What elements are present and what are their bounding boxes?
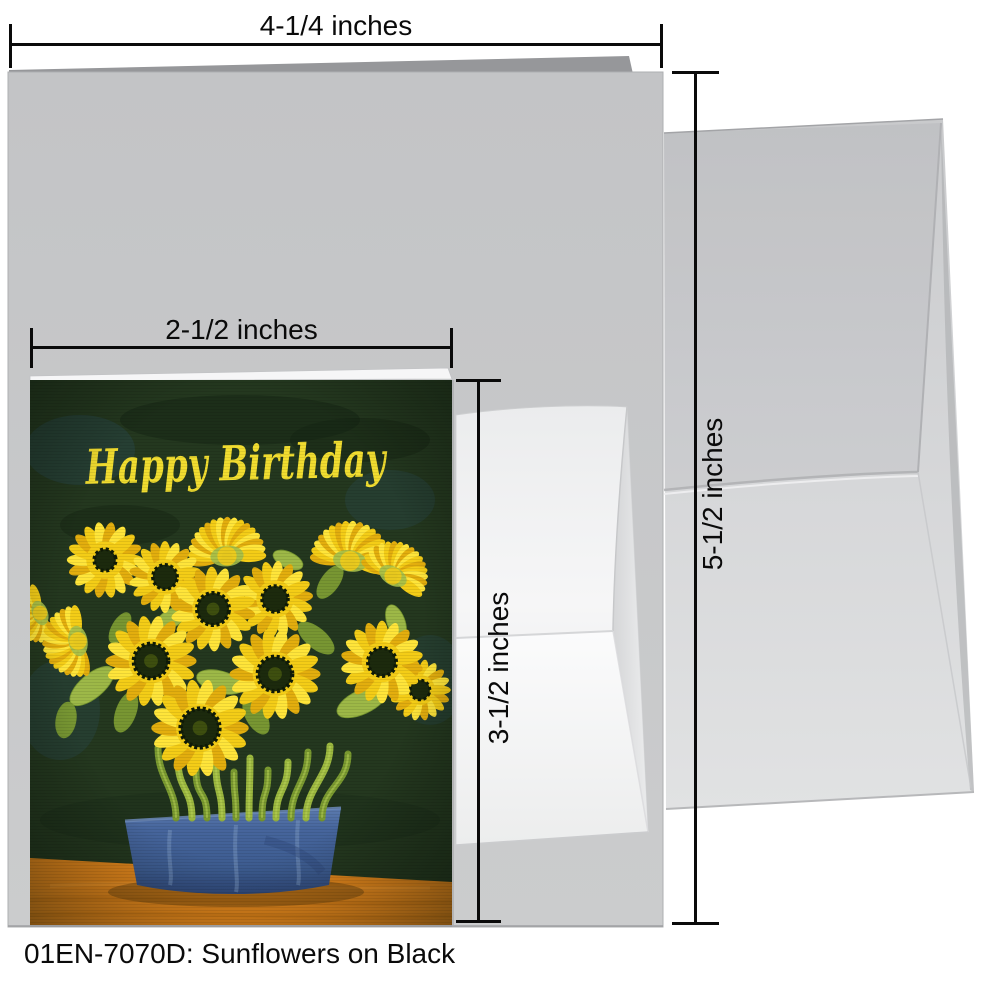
dimension-tick-preview-height-bottom xyxy=(456,920,501,923)
card-artwork: Happy Birthday xyxy=(30,380,452,925)
product-code-caption: 01EN-7070D: Sunflowers on Black xyxy=(24,938,455,970)
dimension-tick-large-height-top xyxy=(672,71,719,74)
dimension-tick-large-width-right xyxy=(660,24,663,68)
dimension-label-preview-width: 2-1/2 inches xyxy=(30,314,453,346)
dimension-tick-preview-height-top xyxy=(456,379,501,382)
vignette-overlay xyxy=(30,380,452,925)
dimension-tick-large-width-left xyxy=(9,24,12,68)
dimension-tick-preview-width-left xyxy=(30,328,33,368)
dimension-tick-large-height-bottom xyxy=(672,922,719,925)
dimension-label-large-height: 5-1/2 inches xyxy=(697,418,729,571)
dimension-line-preview-height xyxy=(477,380,480,923)
product-photo: Happy Birthday 4-1/4 inches 5-1/2 inches… xyxy=(0,0,984,984)
dimension-label-large-width: 4-1/4 inches xyxy=(9,10,663,42)
card-preview: Happy Birthday xyxy=(30,380,452,925)
dimension-tick-preview-width-right xyxy=(450,328,453,368)
dimension-line-preview-width xyxy=(30,346,453,349)
dimension-line-large-width xyxy=(9,43,663,46)
dimension-label-preview-height: 3-1/2 inches xyxy=(483,592,515,745)
dimension-line-large-height xyxy=(694,72,697,925)
